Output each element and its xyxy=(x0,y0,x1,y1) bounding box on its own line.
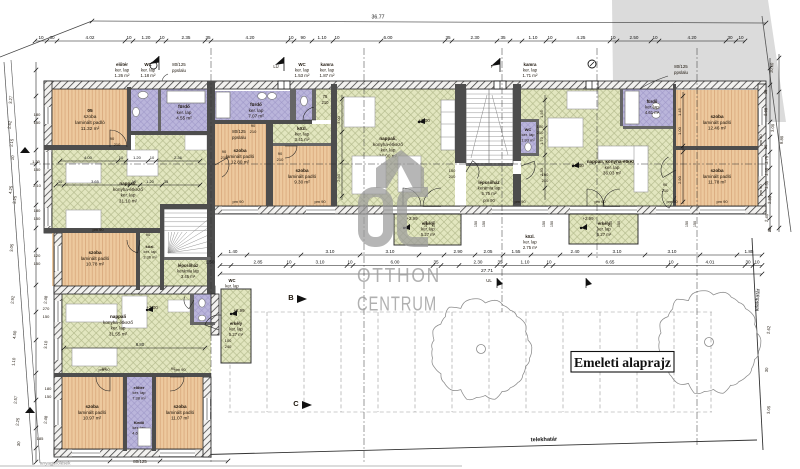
svg-text:90: 90 xyxy=(278,151,283,156)
svg-text:WC: WC xyxy=(298,62,306,67)
svg-text:konyha-étkező: konyha-étkező xyxy=(113,187,143,192)
svg-text:pm 90: pm 90 xyxy=(758,134,763,146)
svg-text:lépcsőház: lépcsőház xyxy=(178,263,198,268)
svg-text:10: 10 xyxy=(668,260,674,265)
svg-text:fürdő: fürdő xyxy=(178,104,190,109)
svg-text:150: 150 xyxy=(685,221,689,227)
svg-text:3.36 m²: 3.36 m² xyxy=(143,254,157,259)
svg-text:35: 35 xyxy=(433,260,439,265)
svg-text:31.55 m²: 31.55 m² xyxy=(109,331,128,336)
svg-text:10: 10 xyxy=(119,155,124,160)
svg-text:+2.99: +2.99 xyxy=(406,216,418,221)
svg-text:erkély: erkély xyxy=(230,321,243,326)
svg-text:3.10: 3.10 xyxy=(613,249,622,254)
svg-text:3.10: 3.10 xyxy=(43,340,49,349)
svg-text:10: 10 xyxy=(150,155,155,160)
svg-text:36.03 m²: 36.03 m² xyxy=(603,171,622,176)
svg-text:270: 270 xyxy=(43,306,50,311)
svg-text:210: 210 xyxy=(449,174,456,179)
svg-text:150: 150 xyxy=(474,221,478,227)
svg-text:90: 90 xyxy=(251,123,256,128)
svg-text:ker. lap: ker. lap xyxy=(121,193,136,198)
svg-text:2.75 m²: 2.75 m² xyxy=(523,245,538,250)
svg-text:210: 210 xyxy=(537,130,544,135)
svg-text:10: 10 xyxy=(159,35,165,40)
svg-text:10: 10 xyxy=(132,179,137,184)
svg-text:1.10: 1.10 xyxy=(529,35,538,40)
svg-text:ker. lap: ker. lap xyxy=(249,108,264,113)
svg-text:35: 35 xyxy=(164,179,169,184)
svg-text:laminált padló: laminált padló xyxy=(78,410,107,415)
svg-text:150: 150 xyxy=(432,221,436,227)
svg-text:WC: WC xyxy=(229,278,236,283)
svg-text:fürdő: fürdő xyxy=(647,99,658,104)
svg-text:telekhatár: telekhatár xyxy=(754,288,761,311)
svg-text:laminált padló: laminált padló xyxy=(703,174,732,179)
svg-text:konyha-étkező: konyha-étkező xyxy=(373,142,403,147)
svg-text:180: 180 xyxy=(34,112,41,117)
svg-text:120: 120 xyxy=(34,253,41,258)
svg-text:2.35: 2.35 xyxy=(182,35,191,40)
svg-text:2.65: 2.65 xyxy=(763,107,769,116)
svg-text:150: 150 xyxy=(34,216,41,221)
svg-text:2.30: 2.30 xyxy=(474,260,483,265)
svg-text:75: 75 xyxy=(323,94,328,99)
svg-text:2.90: 2.90 xyxy=(677,175,682,184)
svg-text:pm 90: pm 90 xyxy=(92,227,104,232)
svg-text:1.20: 1.20 xyxy=(133,155,142,160)
svg-text:100: 100 xyxy=(225,338,232,343)
svg-text:ker. lap: ker. lap xyxy=(229,326,243,331)
svg-text:6.00: 6.00 xyxy=(384,35,393,40)
svg-text:ppslalu: ppslalu xyxy=(674,70,688,75)
svg-text:80/125: 80/125 xyxy=(674,64,688,69)
svg-text:11.78 m²: 11.78 m² xyxy=(708,180,726,185)
svg-text:ker. lap: ker. lap xyxy=(111,326,126,331)
svg-text:1.10: 1.10 xyxy=(11,357,17,366)
svg-text:ker. lap: ker. lap xyxy=(295,132,310,137)
svg-text:1.26 m²: 1.26 m² xyxy=(115,73,130,78)
svg-text:10: 10 xyxy=(334,35,340,40)
svg-text:1.53 m²: 1.53 m² xyxy=(295,73,310,78)
svg-text:11.32 m²: 11.32 m² xyxy=(81,126,100,132)
svg-text:3.10: 3.10 xyxy=(326,249,335,254)
svg-text:5.27 m²: 5.27 m² xyxy=(421,232,436,237)
svg-text:100: 100 xyxy=(537,124,544,129)
svg-text:12.46 m²: 12.46 m² xyxy=(708,126,727,131)
svg-text:35: 35 xyxy=(205,35,211,40)
svg-text:pm 90: pm 90 xyxy=(314,199,326,204)
svg-text:2.85: 2.85 xyxy=(254,260,263,265)
svg-text:150: 150 xyxy=(34,261,41,266)
svg-text:4.25: 4.25 xyxy=(8,185,14,194)
svg-text:szoba: szoba xyxy=(710,114,723,119)
svg-text:C: C xyxy=(293,399,299,408)
svg-text:telekhatár: telekhatár xyxy=(531,437,558,444)
svg-text:kerámia lap: kerámia lap xyxy=(478,186,501,191)
svg-text:2.62: 2.62 xyxy=(7,120,13,129)
svg-text:210: 210 xyxy=(221,155,228,160)
svg-text:80/125: 80/125 xyxy=(172,62,186,67)
svg-text:lépcsőház: lépcsőház xyxy=(478,180,500,185)
svg-text:10: 10 xyxy=(286,260,292,265)
svg-text:2.36: 2.36 xyxy=(174,155,183,160)
svg-text:100: 100 xyxy=(449,168,456,173)
svg-text:2.90: 2.90 xyxy=(454,249,463,254)
svg-text:B: B xyxy=(288,293,294,302)
svg-text:LU: LU xyxy=(273,64,278,69)
svg-text:szoba: szoba xyxy=(295,168,308,173)
svg-text:210: 210 xyxy=(250,129,257,134)
svg-text:6.65: 6.65 xyxy=(606,260,615,265)
svg-text:1.50: 1.50 xyxy=(206,260,215,265)
svg-text:7.07 m²: 7.07 m² xyxy=(248,114,264,119)
svg-text:4.50: 4.50 xyxy=(12,330,18,339)
svg-text:4.25: 4.25 xyxy=(577,35,586,40)
svg-text:10: 10 xyxy=(754,260,760,265)
svg-text:1.50: 1.50 xyxy=(764,180,770,189)
svg-text:+2.99: +2.99 xyxy=(582,216,594,221)
svg-text:90: 90 xyxy=(300,35,306,40)
svg-text:150: 150 xyxy=(43,314,50,319)
svg-text:31.10 m²: 31.10 m² xyxy=(119,198,138,203)
svg-text:35: 35 xyxy=(445,35,451,40)
svg-text:8.80: 8.80 xyxy=(779,135,785,144)
svg-text:35: 35 xyxy=(500,35,506,40)
svg-text:3.45 m²: 3.45 m² xyxy=(181,274,196,279)
svg-text:szoba: szoba xyxy=(84,114,97,120)
svg-text:2.92: 2.92 xyxy=(10,295,16,304)
svg-text:10.97 m²: 10.97 m² xyxy=(83,416,102,421)
svg-text:90: 90 xyxy=(110,136,115,141)
svg-text:10: 10 xyxy=(652,35,658,40)
svg-text:pm 90: pm 90 xyxy=(716,199,728,204)
svg-text:szoba: szoba xyxy=(88,250,101,255)
svg-text:3.25: 3.25 xyxy=(12,195,18,204)
svg-text:36.77: 36.77 xyxy=(372,14,385,20)
svg-text:2.30: 2.30 xyxy=(471,35,480,40)
svg-text:5.27 m²: 5.27 m² xyxy=(229,332,244,337)
svg-text:180: 180 xyxy=(34,208,41,213)
svg-text:150: 150 xyxy=(617,221,621,227)
svg-text:1.85: 1.85 xyxy=(745,249,754,254)
svg-text:10: 10 xyxy=(547,35,553,40)
svg-text:Emeleti alaprajz: Emeleti alaprajz xyxy=(574,355,671,370)
svg-text:laminált padló: laminált padló xyxy=(166,410,195,415)
svg-text:2.30: 2.30 xyxy=(539,167,544,176)
svg-text:nappali,: nappali, xyxy=(379,136,396,141)
svg-text:F: F xyxy=(491,64,494,69)
svg-text:10: 10 xyxy=(126,35,132,40)
svg-text:pm 90: pm 90 xyxy=(514,199,526,204)
svg-text:1.40: 1.40 xyxy=(229,249,238,254)
svg-text:27.71: 27.71 xyxy=(481,268,493,274)
svg-text:3.00: 3.00 xyxy=(336,115,341,124)
svg-text:laminált padló: laminált padló xyxy=(288,174,317,179)
svg-text:ker. lap: ker. lap xyxy=(381,148,396,153)
svg-text:10: 10 xyxy=(38,35,44,40)
svg-text:1.87 m²: 1.87 m² xyxy=(320,73,335,78)
svg-text:10: 10 xyxy=(546,260,552,265)
svg-text:4.55 m²: 4.55 m² xyxy=(176,116,192,121)
svg-text:1.75: 1.75 xyxy=(764,155,770,164)
svg-text:2.50: 2.50 xyxy=(336,173,341,182)
svg-text:laminált padló: laminált padló xyxy=(226,154,255,159)
svg-text:1.55: 1.55 xyxy=(512,249,521,254)
svg-text:OTTHON: OTTHON xyxy=(357,265,441,287)
svg-text:pm 90: pm 90 xyxy=(98,367,110,372)
svg-text:1.73: 1.73 xyxy=(539,136,544,145)
svg-text:210: 210 xyxy=(277,157,284,162)
svg-text:ker. lap: ker. lap xyxy=(523,68,538,73)
svg-text:10.78 m²: 10.78 m² xyxy=(86,262,105,267)
svg-text:előtér: előtér xyxy=(116,62,128,67)
svg-text:10: 10 xyxy=(288,35,294,40)
svg-text:konyha-étkező: konyha-étkező xyxy=(103,320,133,325)
svg-text:2.48: 2.48 xyxy=(43,295,49,304)
svg-text:180: 180 xyxy=(45,386,52,391)
svg-text:pm 90: pm 90 xyxy=(174,367,186,372)
svg-text:1.20: 1.20 xyxy=(32,159,41,164)
svg-text:4.00: 4.00 xyxy=(84,155,93,160)
svg-text:150: 150 xyxy=(550,221,554,227)
svg-text:2.50: 2.50 xyxy=(630,35,639,40)
svg-text:szoba: szoba xyxy=(710,168,723,173)
svg-text:185: 185 xyxy=(37,436,44,441)
svg-text:5.27 m²: 5.27 m² xyxy=(597,232,612,237)
svg-text:3.05: 3.05 xyxy=(766,405,772,414)
svg-text:1.10: 1.10 xyxy=(521,260,530,265)
svg-text:pm 90: pm 90 xyxy=(232,199,244,204)
svg-text:3.00: 3.00 xyxy=(770,123,776,132)
svg-text:90: 90 xyxy=(663,182,668,187)
svg-text:30: 30 xyxy=(727,35,733,40)
svg-text:1.20: 1.20 xyxy=(146,179,155,184)
svg-text:210: 210 xyxy=(322,100,330,105)
svg-text:szoba: szoba xyxy=(85,404,98,409)
svg-text:ppslalu: ppslalu xyxy=(232,135,246,140)
svg-text:kerámia lap: kerámia lap xyxy=(177,268,199,273)
svg-text:30: 30 xyxy=(745,260,751,265)
svg-text:laminált padló: laminált padló xyxy=(75,120,105,126)
svg-text:2.80: 2.80 xyxy=(767,195,773,204)
svg-text:1.71 m²: 1.71 m² xyxy=(523,73,538,78)
svg-text:ker. lap: ker. lap xyxy=(320,68,335,73)
svg-text:1.45: 1.45 xyxy=(677,107,682,116)
svg-text:4.20: 4.20 xyxy=(688,35,697,40)
svg-text:1.93 m²: 1.93 m² xyxy=(521,137,535,142)
svg-text:150: 150 xyxy=(34,120,41,125)
svg-text:6.00: 6.00 xyxy=(391,260,400,265)
svg-text:150: 150 xyxy=(542,221,546,227)
svg-text:2.57: 2.57 xyxy=(13,395,19,404)
svg-text:150: 150 xyxy=(424,221,428,227)
svg-text:150: 150 xyxy=(482,221,486,227)
svg-text:1.55: 1.55 xyxy=(539,109,544,118)
svg-text:3.10: 3.10 xyxy=(668,249,677,254)
svg-text:3.27: 3.27 xyxy=(8,95,14,104)
svg-text:ker. lap: ker. lap xyxy=(645,104,659,109)
svg-text:UL: UL xyxy=(486,278,492,283)
svg-text:nappali: nappali xyxy=(110,314,126,319)
svg-text:1.00: 1.00 xyxy=(677,126,682,135)
svg-text:9.30 m²: 9.30 m² xyxy=(294,180,310,185)
svg-text:laminált padló: laminált padló xyxy=(81,256,110,261)
svg-text:30: 30 xyxy=(49,35,55,40)
svg-text:ker. lap: ker. lap xyxy=(141,68,156,73)
svg-text:3.05: 3.05 xyxy=(9,243,15,252)
svg-text:3.10: 3.10 xyxy=(386,249,395,254)
svg-text:2.48: 2.48 xyxy=(43,415,49,424)
svg-text:210: 210 xyxy=(542,178,549,183)
svg-text:3.65: 3.65 xyxy=(91,179,100,184)
svg-text:pm 90: pm 90 xyxy=(666,199,678,204)
svg-text:2.10: 2.10 xyxy=(33,183,42,188)
svg-text:35: 35 xyxy=(497,260,503,265)
svg-text:5.75 m²: 5.75 m² xyxy=(482,191,497,196)
svg-text:30: 30 xyxy=(58,179,63,184)
svg-text:ker. lap: ker. lap xyxy=(605,165,620,170)
svg-text:150: 150 xyxy=(609,221,613,227)
svg-text:10: 10 xyxy=(738,35,744,40)
svg-text:90: 90 xyxy=(146,232,151,237)
svg-text:szoba: szoba xyxy=(233,148,246,153)
svg-text:pm 90: pm 90 xyxy=(483,198,495,203)
svg-text:2.40: 2.40 xyxy=(571,249,580,254)
svg-text:1.10: 1.10 xyxy=(318,35,327,40)
svg-text:150: 150 xyxy=(693,221,697,227)
svg-text:4.01: 4.01 xyxy=(706,260,715,265)
svg-text:90: 90 xyxy=(222,149,227,154)
svg-text:ker. lap: ker. lap xyxy=(225,283,239,288)
svg-text:laminált padló: laminált padló xyxy=(703,120,732,125)
svg-text:4.20: 4.20 xyxy=(246,35,255,40)
svg-text:10: 10 xyxy=(347,260,353,265)
svg-text:6.80: 6.80 xyxy=(136,342,145,347)
svg-text:150: 150 xyxy=(34,167,41,172)
svg-text:3.10: 3.10 xyxy=(316,260,325,265)
svg-text:ppslalu: ppslalu xyxy=(172,68,186,73)
svg-text:ker. lap: ker. lap xyxy=(523,239,537,244)
svg-text:fürdő: fürdő xyxy=(250,102,262,107)
svg-text:80/125: 80/125 xyxy=(133,459,147,464)
svg-text:1.18 m²: 1.18 m² xyxy=(141,73,156,78)
svg-text:210: 210 xyxy=(114,142,121,147)
svg-text:1.20: 1.20 xyxy=(142,35,151,40)
svg-text:7.38 m²: 7.38 m² xyxy=(132,395,146,400)
svg-text:11.07 m²: 11.07 m² xyxy=(171,416,189,421)
svg-text:közl.: közl. xyxy=(525,234,534,239)
svg-text:ker. lap: ker. lap xyxy=(115,68,130,73)
svg-text:80/125: 80/125 xyxy=(232,129,246,134)
svg-text:pm 90: pm 90 xyxy=(758,184,763,196)
svg-text:kamra: kamra xyxy=(524,62,537,67)
svg-text:pm 90: pm 90 xyxy=(594,199,606,204)
svg-text:ker. lap: ker. lap xyxy=(177,110,192,115)
svg-text:10: 10 xyxy=(610,35,616,40)
svg-text:1.50: 1.50 xyxy=(764,167,770,176)
svg-text:2.40: 2.40 xyxy=(764,213,770,222)
svg-text:4.61 m²: 4.61 m² xyxy=(645,110,660,115)
svg-text:kamra: kamra xyxy=(321,62,334,67)
svg-text:2.15: 2.15 xyxy=(9,138,15,147)
svg-text:közl.: közl. xyxy=(297,126,307,131)
svg-text:2.05: 2.05 xyxy=(484,249,493,254)
svg-text:2.25: 2.25 xyxy=(15,417,21,426)
svg-text:szoba: szoba xyxy=(173,404,186,409)
svg-text:4.02: 4.02 xyxy=(86,35,95,40)
svg-text:3.41 m²: 3.41 m² xyxy=(295,137,310,142)
svg-text:CENTRUM: CENTRUM xyxy=(357,294,437,316)
svg-text:2.62: 2.62 xyxy=(766,325,772,334)
svg-text:05: 05 xyxy=(87,108,93,114)
svg-text:10,10: 10,10 xyxy=(769,62,775,74)
svg-text:ker. lap: ker. lap xyxy=(295,68,310,73)
svg-text:150: 150 xyxy=(45,394,52,399)
svg-text:240: 240 xyxy=(225,344,232,349)
